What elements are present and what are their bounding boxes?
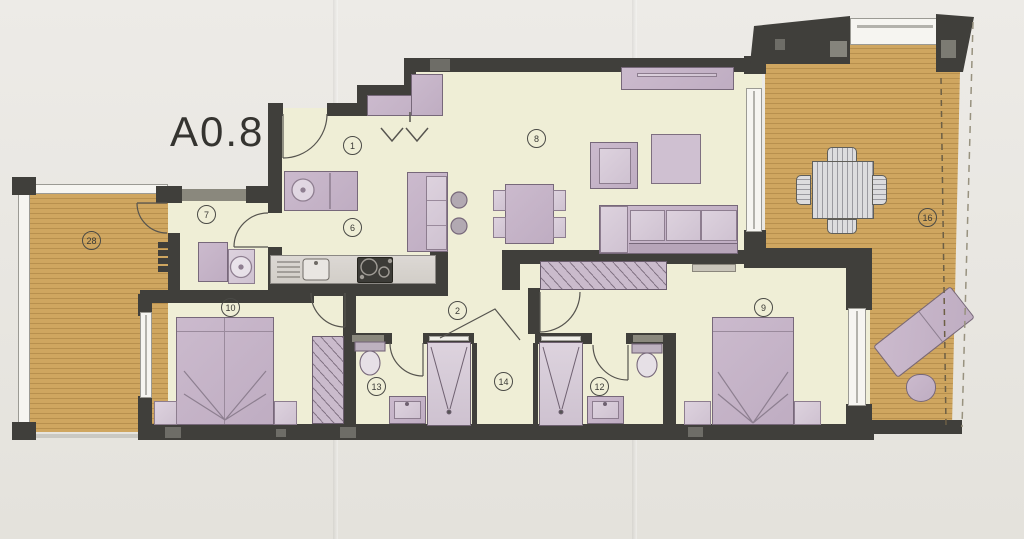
outdoor-chair (827, 219, 857, 234)
room-marker-bathroom-left: 13 (367, 377, 386, 396)
cooktop (357, 257, 393, 283)
wall-segment-light (180, 189, 248, 201)
wall-segment (502, 250, 520, 290)
window-living-terrace (746, 88, 762, 232)
outdoor-chair (872, 175, 887, 205)
outdoor-chair (827, 147, 857, 162)
outdoor-chair (796, 175, 811, 205)
pillar (430, 59, 450, 71)
room-marker-entry-hall: 1 (343, 136, 362, 155)
unit-divider (329, 173, 331, 209)
window-glass-line (145, 315, 147, 395)
kitchen-island-top (426, 176, 447, 250)
pillar (165, 427, 181, 438)
wall-segment (168, 233, 180, 291)
pillar (688, 427, 703, 437)
window-glass-line (753, 91, 755, 229)
sideboard (621, 67, 734, 90)
shower-threshold (429, 336, 469, 341)
room-marker-living-room: 8 (527, 129, 546, 148)
wall-segment (868, 420, 962, 434)
dining-chair (553, 190, 566, 211)
sideboard-handle (637, 73, 717, 77)
dining-chair (493, 190, 506, 211)
room-marker-bedroom-right: 9 (754, 298, 773, 317)
pillar (941, 40, 956, 58)
bed-line (713, 331, 793, 332)
unit-label: A0.8 (170, 108, 264, 156)
dining-chair (553, 217, 566, 238)
wall-exterior-south (138, 424, 874, 440)
utility-appliance (228, 249, 255, 284)
wall-segment (533, 343, 538, 428)
room-marker-kitchen: 6 (343, 218, 362, 237)
wardrobe (312, 336, 344, 424)
sofa-cushion (666, 210, 701, 241)
window-bedroom-right (848, 308, 866, 406)
nightstand (684, 401, 711, 425)
lounger-fold-line (918, 312, 942, 343)
wall-segment (343, 290, 356, 432)
boundary-dashed-line (962, 22, 973, 427)
dining-table (505, 184, 554, 244)
washer (198, 242, 228, 282)
entry-closet (411, 74, 443, 116)
room-marker-terrace-right: 16 (918, 208, 937, 227)
room-marker-hallway: 2 (448, 301, 467, 320)
room-marker-bedroom-left: 10 (221, 298, 240, 317)
wall-segment (528, 288, 540, 334)
kitchen-counter (270, 255, 436, 284)
dining-chair (493, 217, 506, 238)
outdoor-side-table (906, 374, 936, 402)
window-glass-line (856, 311, 858, 403)
outdoor-table (812, 161, 874, 219)
nightstand (154, 401, 177, 425)
pillar (830, 41, 847, 57)
balustrade (18, 184, 168, 194)
pillar (12, 177, 36, 195)
shower-stall (539, 342, 583, 426)
island-line (427, 200, 446, 201)
sofa-back (629, 243, 737, 253)
planter (850, 18, 938, 45)
window-bedroom-left (140, 312, 152, 398)
room-marker-terrace-left: 28 (82, 231, 101, 250)
wall-niche (352, 335, 384, 342)
bed-double (176, 317, 274, 425)
wall-segment (246, 186, 272, 203)
nightstand (794, 401, 821, 425)
kitchen-appliance-unit (284, 171, 358, 211)
shower-stall (427, 342, 471, 426)
wall-segment (663, 333, 676, 432)
balustrade (18, 184, 30, 438)
room-marker-bathroom-right: 12 (590, 377, 609, 396)
planter-line (857, 25, 933, 28)
pillar (775, 39, 785, 50)
bed-line (177, 331, 273, 332)
sofa-cushion (701, 210, 737, 241)
pillar (12, 422, 36, 440)
pillar (340, 427, 356, 438)
bed-double (712, 317, 794, 425)
pillar (744, 230, 766, 264)
shelf (692, 264, 736, 272)
sofa-chaise (600, 206, 628, 253)
side-table (651, 134, 701, 184)
wall-segment (268, 284, 438, 296)
balustrade (18, 434, 142, 438)
sofa-cushion (630, 210, 665, 241)
room-marker-utility-room: 7 (197, 205, 216, 224)
floorplan-sheet: A0.8 (0, 0, 1024, 539)
wall-segment (472, 343, 477, 428)
bed-center-line (224, 318, 225, 424)
wall-niche (633, 335, 663, 342)
wall-segment (138, 396, 152, 428)
bathroom-sink-basin (394, 401, 421, 419)
wardrobe (540, 261, 667, 290)
armchair-seat (599, 148, 631, 184)
bathroom-sink-basin (592, 401, 619, 419)
wall-segment (846, 252, 872, 310)
island-line (427, 225, 446, 226)
shower-threshold (541, 336, 581, 341)
room-marker-inner-hall: 14 (494, 372, 513, 391)
pillar (276, 429, 286, 437)
wall-segment (156, 186, 182, 203)
nightstand (274, 401, 297, 425)
